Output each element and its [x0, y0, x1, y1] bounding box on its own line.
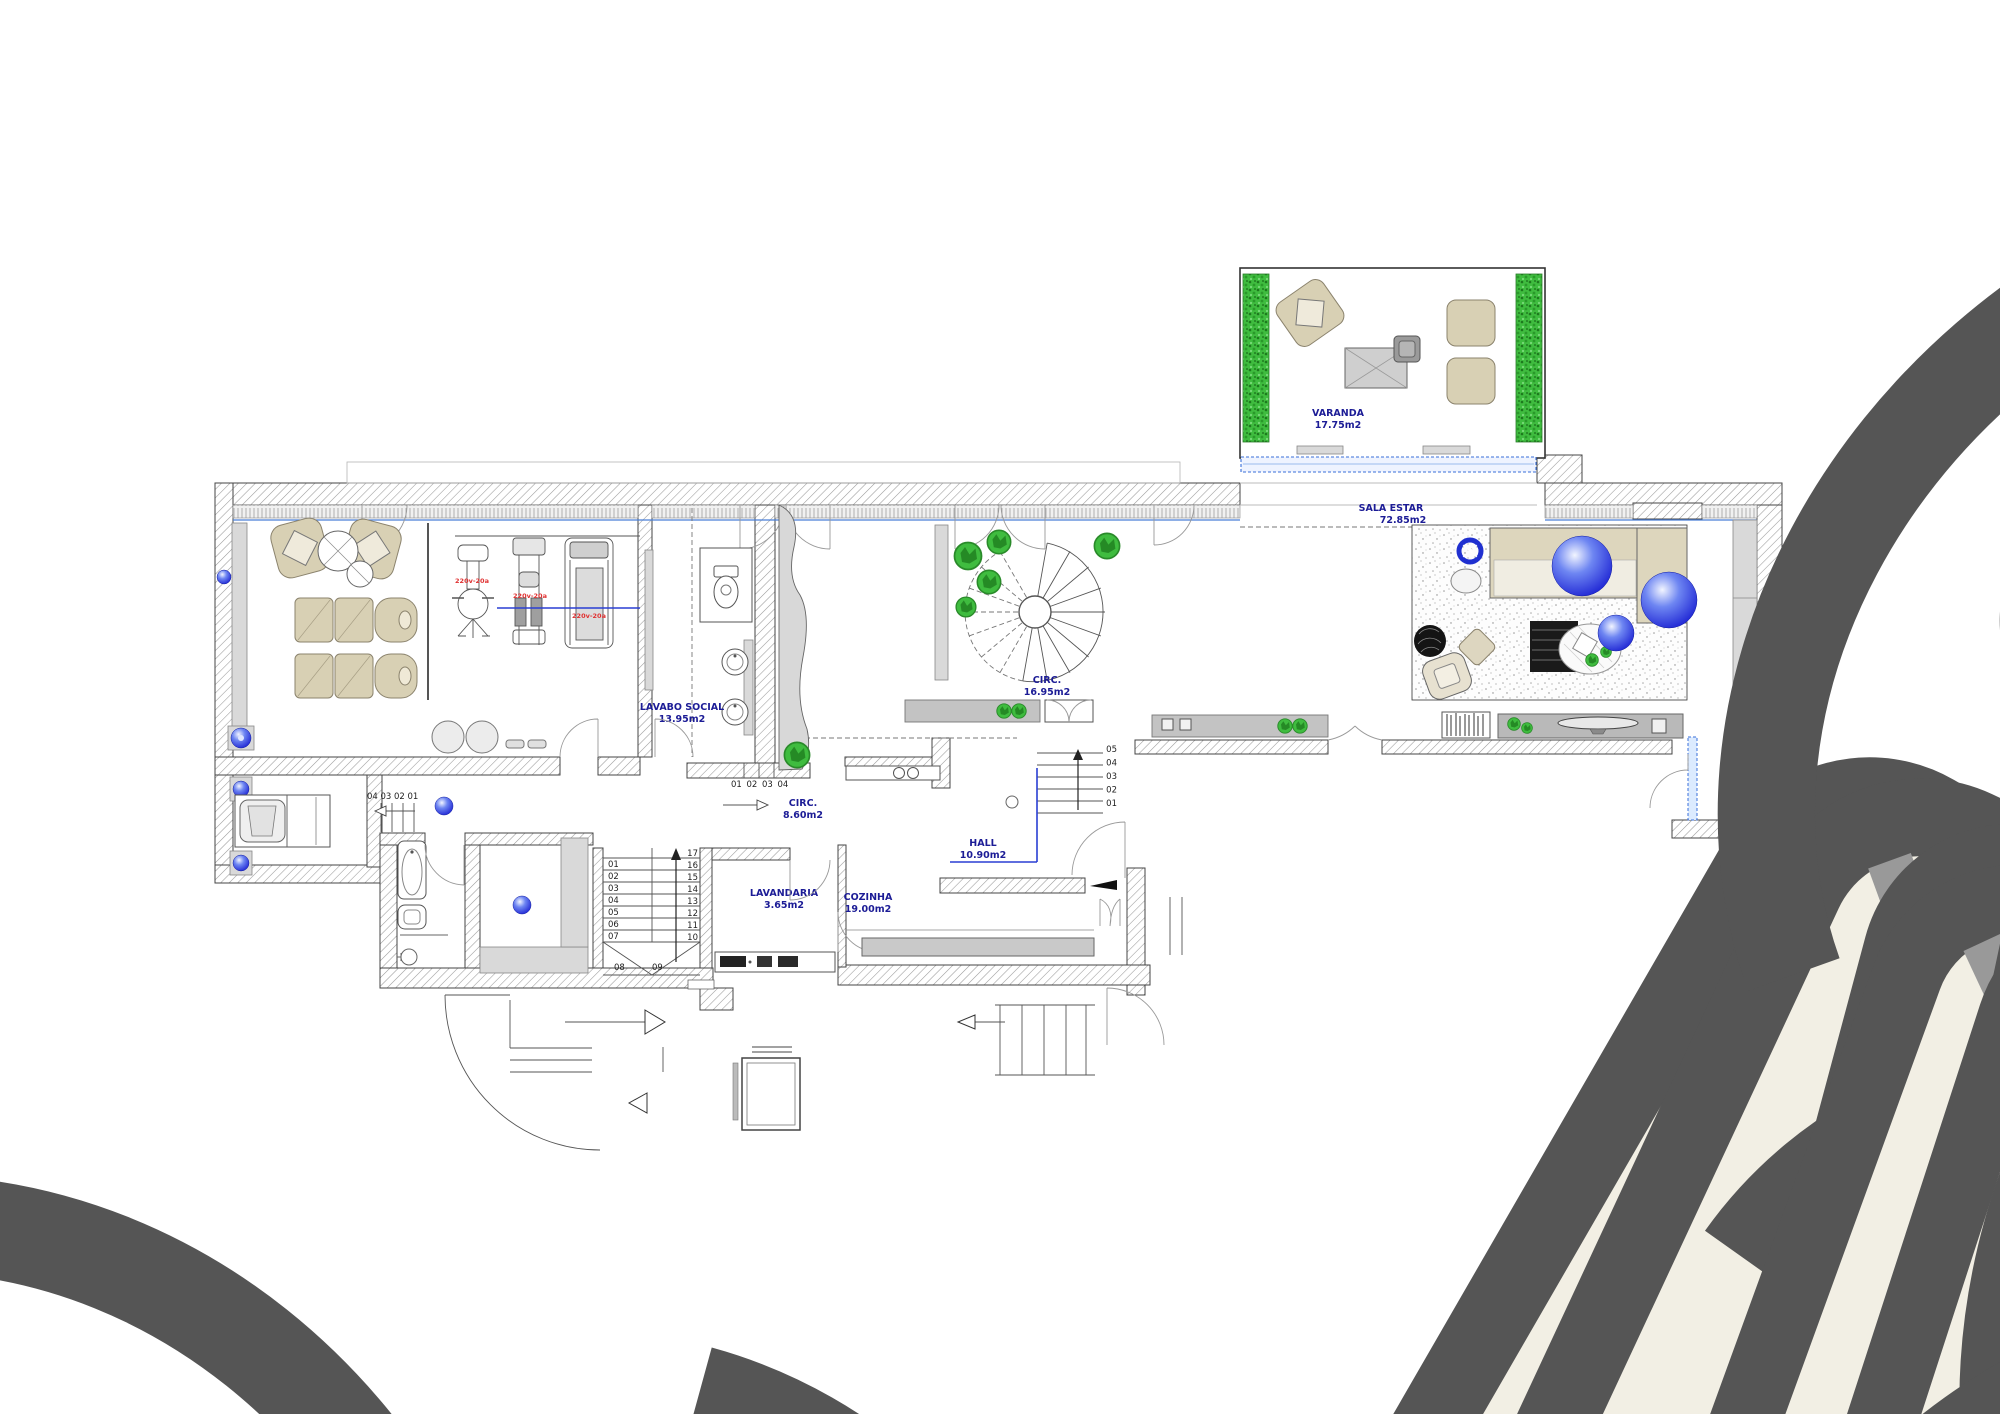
appliance — [757, 956, 772, 967]
stair-number: 07 — [608, 932, 619, 942]
planter-left — [1243, 274, 1269, 442]
dryer — [778, 956, 798, 967]
stair-number: 02 — [747, 780, 758, 790]
room-label-varanda: VARANDA — [1312, 408, 1365, 419]
entrance-area — [445, 995, 665, 1150]
roof-overhang-outline — [347, 462, 1180, 483]
ceiling-light — [513, 896, 531, 914]
stair-number: 01 — [408, 792, 419, 802]
stair-number: 17 — [687, 849, 698, 859]
toilet — [714, 566, 738, 608]
stair-number: 02 — [608, 872, 619, 882]
plant — [987, 530, 1010, 553]
blue-sphere — [1552, 536, 1612, 596]
massage-table — [295, 598, 417, 642]
room-area-varanda: 17.75m2 — [1315, 420, 1362, 431]
stair-number: 12 — [687, 909, 698, 919]
stair-number: 13 — [687, 897, 698, 907]
stair-number: 09 — [652, 963, 663, 973]
treadmill — [565, 538, 613, 648]
bedroom-step-numbers: 04030201 — [367, 792, 418, 802]
plant — [955, 543, 982, 570]
dumbbell — [506, 740, 524, 748]
glass-door — [1688, 737, 1697, 820]
plant — [997, 704, 1011, 718]
level-tag — [688, 980, 714, 989]
sink — [722, 699, 748, 725]
bathroom — [397, 841, 464, 965]
spiral-staircase: CIRC. 16.95m2 — [935, 525, 1120, 698]
stair-number: 05 — [1106, 745, 1117, 755]
exercise-bike — [452, 545, 494, 638]
plant — [1586, 654, 1599, 667]
cloak-closet — [779, 505, 809, 770]
stair-numbers-right: 1716151413121110 — [687, 849, 698, 943]
stair-number: 05 — [608, 908, 619, 918]
room-label-sala-estar: SALA ESTAR — [1359, 503, 1424, 514]
stair-number: 03 — [381, 792, 392, 802]
stair-number: 01 — [1106, 799, 1117, 809]
equipment-power-label: 220v-20a — [455, 577, 489, 585]
room-label-lavabo: LAVABO SOCIAL — [640, 702, 724, 713]
ceiling-light — [233, 855, 249, 871]
stair-number: 02 — [1106, 786, 1117, 796]
stair-number: 01 — [608, 860, 619, 870]
equipment-power-label: 220v-20a — [572, 612, 606, 620]
stair-number: 08 — [614, 963, 625, 973]
bathtub — [398, 841, 426, 899]
person-figure — [0, 1191, 1154, 1414]
floor-plan-drawing: VARANDA 17.75m2 — [0, 0, 2000, 1414]
bed — [235, 795, 330, 847]
black-pouf — [1414, 625, 1446, 657]
gym-area: 220v-20a 220v-20a 220v-20a — [432, 538, 640, 753]
stair-number: 15 — [687, 873, 698, 883]
room-label-cozinha: COZINHA — [844, 892, 893, 903]
stair-number: 01 — [731, 780, 742, 790]
exercise-ball — [466, 721, 498, 753]
room-area-lavandaria: 3.65m2 — [764, 900, 804, 911]
ceiling-light — [435, 797, 453, 815]
room-label-hall: HALL — [969, 838, 996, 849]
stair-number: 10 — [687, 933, 698, 943]
sink — [722, 649, 748, 675]
plant — [977, 570, 1000, 593]
stair-number: 04 — [778, 780, 789, 790]
stair-number: 03 — [762, 780, 773, 790]
room-area-circ-spiral: 16.95m2 — [1024, 687, 1071, 698]
lavandaria: LAVANDARIA 3.65m2 — [715, 860, 835, 972]
wall-light — [217, 570, 231, 584]
stair-number: 14 — [687, 885, 698, 895]
stair-number: 11 — [687, 921, 698, 931]
plant — [956, 597, 976, 617]
toilet — [398, 905, 426, 929]
tv — [1558, 717, 1638, 729]
lower-hall — [480, 838, 588, 973]
stair-number: 06 — [608, 920, 619, 930]
exterior-stair-right — [958, 988, 1164, 1075]
stair-numbers-left: 01020304050607 — [608, 860, 619, 942]
tv-wall — [1442, 712, 1683, 738]
stair-number: 04 — [367, 792, 378, 802]
exercise-ball — [432, 721, 464, 753]
room-label-lavandaria: LAVANDARIA — [750, 888, 819, 899]
plant — [1508, 718, 1521, 731]
massage-table — [295, 654, 417, 698]
kitchen-counter — [862, 938, 1094, 956]
room-area-sala-estar: 72.85m2 — [1380, 515, 1427, 526]
plant — [1012, 704, 1026, 718]
elevator — [733, 1047, 800, 1130]
console-row — [905, 700, 1382, 740]
lavabo-step-numbers: 01020304 — [731, 780, 788, 790]
stair-number: 04 — [1106, 759, 1117, 769]
room-area-lavabo: 13.95m2 — [659, 714, 706, 725]
room-area-cozinha: 19.00m2 — [845, 904, 892, 915]
room-area-circ-small: 8.60m2 — [783, 810, 823, 821]
direction-wedge — [1090, 880, 1117, 890]
stair-number: 04 — [608, 896, 619, 906]
sliding-glass-door — [1241, 457, 1536, 472]
washer — [720, 956, 746, 967]
stair-number: 03 — [1106, 772, 1117, 782]
plant — [784, 742, 809, 767]
blue-sphere — [1641, 572, 1697, 628]
room-label-circ-small: CIRC. — [789, 798, 817, 809]
planter-right — [1516, 274, 1542, 442]
hall-stair-numbers: 0504030201 — [1106, 745, 1117, 809]
equipment-power-label: 220v-20a — [513, 592, 547, 600]
plant — [1094, 533, 1119, 558]
room-area-hall: 10.90m2 — [960, 850, 1007, 861]
shower-head — [397, 949, 417, 965]
oval-side-table — [1451, 569, 1481, 593]
stair-number: 16 — [687, 861, 698, 871]
plant — [1522, 723, 1533, 734]
stair-number: 03 — [608, 884, 619, 894]
room-label-circ-spiral: CIRC. — [1033, 675, 1061, 686]
stair-number: 02 — [394, 792, 405, 802]
floor-plan-canvas: VARANDA 17.75m2 — [0, 0, 2000, 1414]
decor-swirl — [1006, 796, 1018, 808]
dumbbell — [528, 740, 546, 748]
plant — [1278, 719, 1292, 733]
blue-sphere — [1598, 615, 1634, 651]
plant — [1293, 719, 1307, 733]
